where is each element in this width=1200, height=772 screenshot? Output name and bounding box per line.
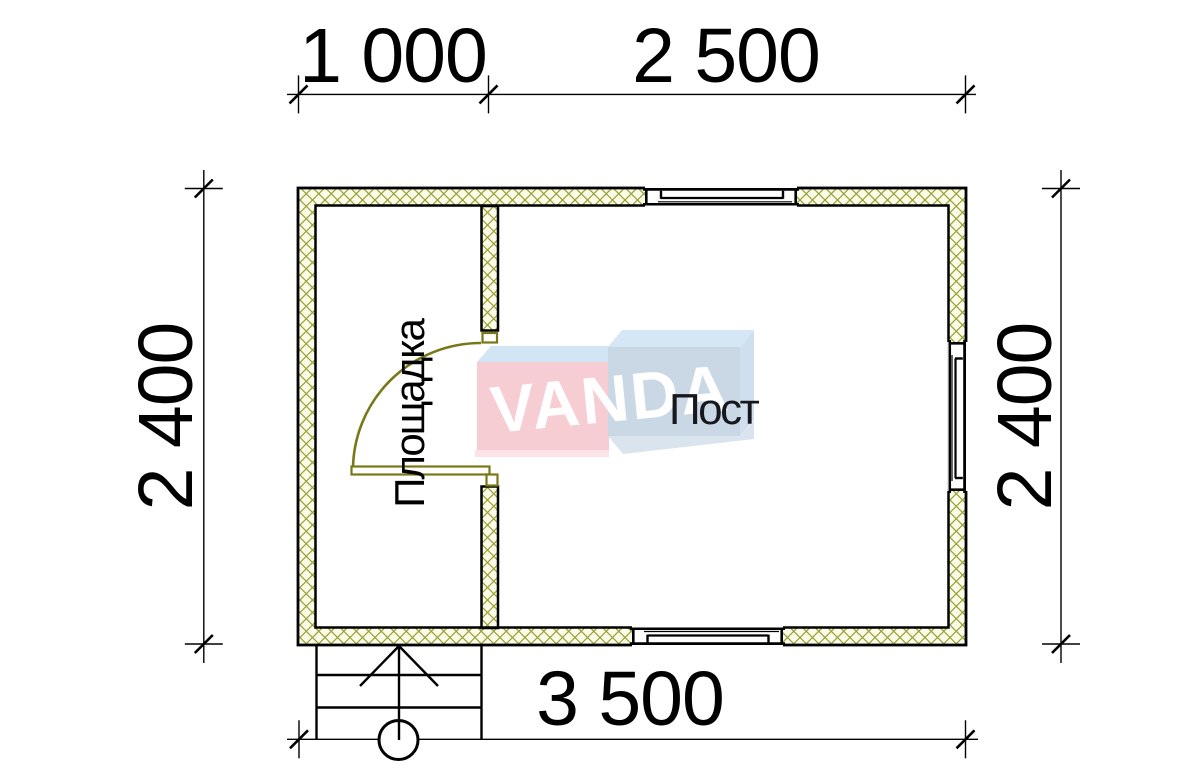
svg-text:2 400: 2 400: [123, 323, 209, 511]
svg-text:Пост: Пост: [669, 385, 760, 434]
svg-text:Площадка: Площадка: [386, 318, 433, 508]
svg-text:3 500: 3 500: [536, 656, 724, 742]
svg-text:2 500: 2 500: [632, 13, 820, 99]
svg-text:2 400: 2 400: [982, 323, 1068, 511]
svg-text:1 000: 1 000: [299, 13, 487, 99]
